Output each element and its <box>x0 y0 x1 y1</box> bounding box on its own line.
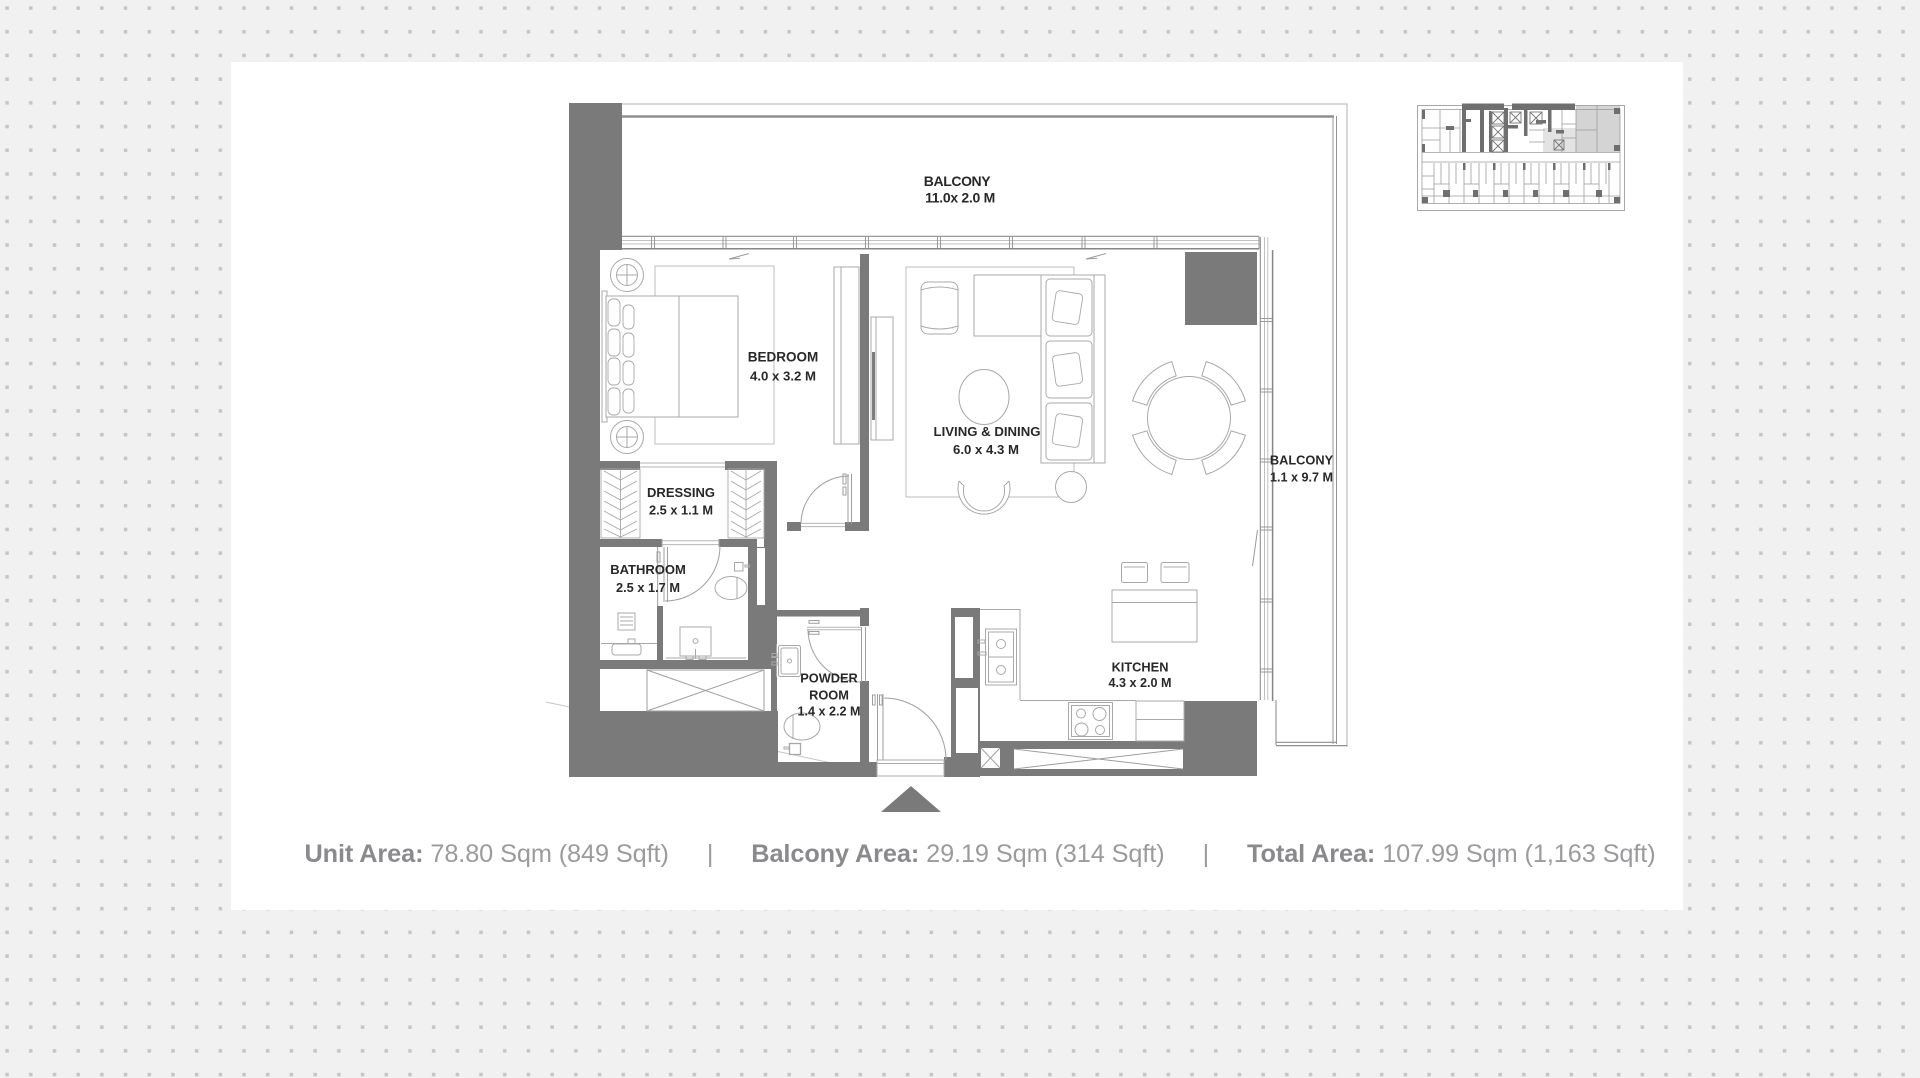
svg-text:1.1 x 9.7 M: 1.1 x 9.7 M <box>1270 471 1333 485</box>
svg-text:6.0 x 4.3 M: 6.0 x 4.3 M <box>953 442 1019 457</box>
svg-text:2.5 x 1.7 M: 2.5 x 1.7 M <box>616 580 680 595</box>
svg-text:POWDER: POWDER <box>800 671 858 686</box>
svg-text:2.5 x 1.1 M: 2.5 x 1.1 M <box>649 503 713 518</box>
svg-text:LIVING & DINING: LIVING & DINING <box>934 424 1041 439</box>
svg-text:11.0x 2.0 M: 11.0x 2.0 M <box>925 189 995 205</box>
svg-text:1.4 x 2.2 M: 1.4 x 2.2 M <box>797 705 860 719</box>
svg-text:KITCHEN: KITCHEN <box>1112 660 1169 675</box>
svg-text:ROOM: ROOM <box>809 688 849 703</box>
svg-text:BATHROOM: BATHROOM <box>610 562 686 577</box>
svg-text:4.0 x 3.2 M: 4.0 x 3.2 M <box>750 369 816 384</box>
svg-text:BEDROOM: BEDROOM <box>748 350 819 365</box>
svg-text:4.3 x 2.0 M: 4.3 x 2.0 M <box>1108 676 1171 690</box>
svg-text:DRESSING: DRESSING <box>647 485 715 500</box>
svg-text:BALCONY: BALCONY <box>924 173 991 189</box>
svg-text:BALCONY: BALCONY <box>1270 453 1334 468</box>
